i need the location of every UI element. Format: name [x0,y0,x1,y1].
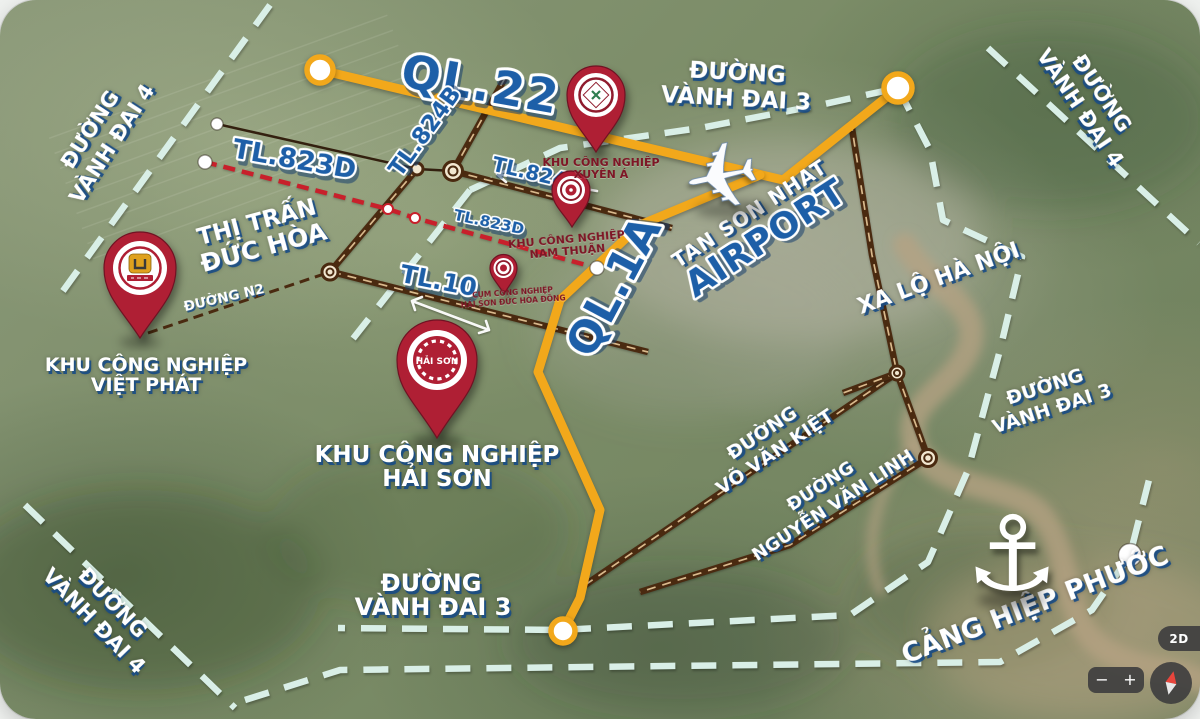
page: QL.22 TL.824B TL.823D TL.824 TL.823D TL.… [0,0,1200,719]
pin-hai-son-logo-text: HẢI SƠN [416,355,459,367]
label-thi-tran-duc-hoa: THỊ TRẤN ĐỨC HÒA [190,188,331,278]
label-ring3-top: ĐƯỜNG VÀNH ĐAI 3 [660,54,813,116]
pin-viet-phat[interactable] [104,232,176,348]
label-ring3-right: ĐƯỜNG VÀNH ĐAI 3 [982,355,1115,438]
anchor-icon: ⚓ [965,493,1058,615]
label-duong-n2: ĐƯỜNG N2 [182,279,266,315]
zoom-control: − + [1088,667,1144,693]
zoom-in-button[interactable]: + [1116,667,1144,693]
svg-text:VIỆT PHÁT: VIỆT PHÁT [91,372,201,396]
label-pin-viet-phat: KHU CÔNG NGHIỆP VIỆT PHÁT [45,352,247,396]
svg-text:⚓: ⚓ [965,493,1058,615]
svg-text:KHU CÔNG NGHIỆP: KHU CÔNG NGHIỆP [45,352,247,376]
map-mode-2d-button[interactable]: 2D [1158,626,1200,651]
zoom-out-button[interactable]: − [1088,667,1116,693]
compass-button[interactable] [1150,662,1192,704]
pin-xuyen-a[interactable] [567,66,625,160]
ql1a-north-endpoint [884,74,912,102]
road-duc-hoa [330,169,417,272]
svg-text:XUYÊN Á: XUYÊN Á [574,168,629,181]
ql22-west-endpoint [307,57,333,83]
map-canvas[interactable]: QL.22 TL.824B TL.823D TL.824 TL.823D TL.… [0,0,1200,719]
svg-text:KHU CÔNG NGHIỆP: KHU CÔNG NGHIỆP [315,440,560,468]
svg-text:HẢI SƠN: HẢI SƠN [382,462,492,492]
map-viewport[interactable]: QL.22 TL.824B TL.823D TL.824 TL.823D TL.… [0,0,1200,719]
pin-hai-son[interactable]: HẢI SƠN [397,320,477,450]
compass-needle-icon [1156,668,1186,698]
svg-text:VÀNH ĐAI 3: VÀNH ĐAI 3 [660,80,811,116]
ql1a-south-endpoint [551,619,575,643]
svg-text:VÀNH ĐAI 3: VÀNH ĐAI 3 [355,592,512,621]
